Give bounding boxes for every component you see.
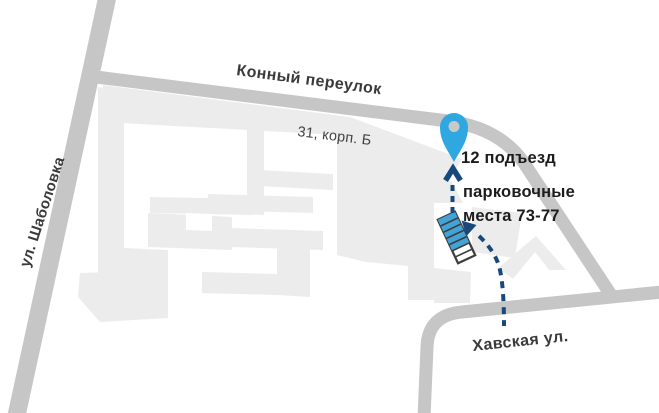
street-label-khavskaya: Хавская ул. <box>472 328 570 355</box>
building-left-column <box>98 87 124 302</box>
building-bar-c <box>208 194 313 213</box>
building-bar-e <box>202 272 278 295</box>
map-svg: Конный переулок ул. Шаболовка Хавская ул… <box>0 0 659 413</box>
building-courtyard-notch <box>186 213 212 231</box>
road-khavskaya <box>424 292 659 413</box>
building-column-east <box>277 238 310 297</box>
road-shabolovka <box>16 0 108 413</box>
building-bar-a <box>258 170 333 190</box>
pin-hole <box>449 121 460 132</box>
parking-label-line1: парковочные <box>463 183 575 201</box>
building-footprints <box>78 85 566 322</box>
parking-label-line2: места 73-77 <box>463 207 560 225</box>
building-south-of-parking <box>434 268 471 303</box>
map-canvas: Конный переулок ул. Шаболовка Хавская ул… <box>0 0 659 413</box>
building-step <box>124 248 168 276</box>
building-blob-southwest <box>78 270 168 322</box>
entrance-label: 12 подъезд <box>461 149 556 167</box>
